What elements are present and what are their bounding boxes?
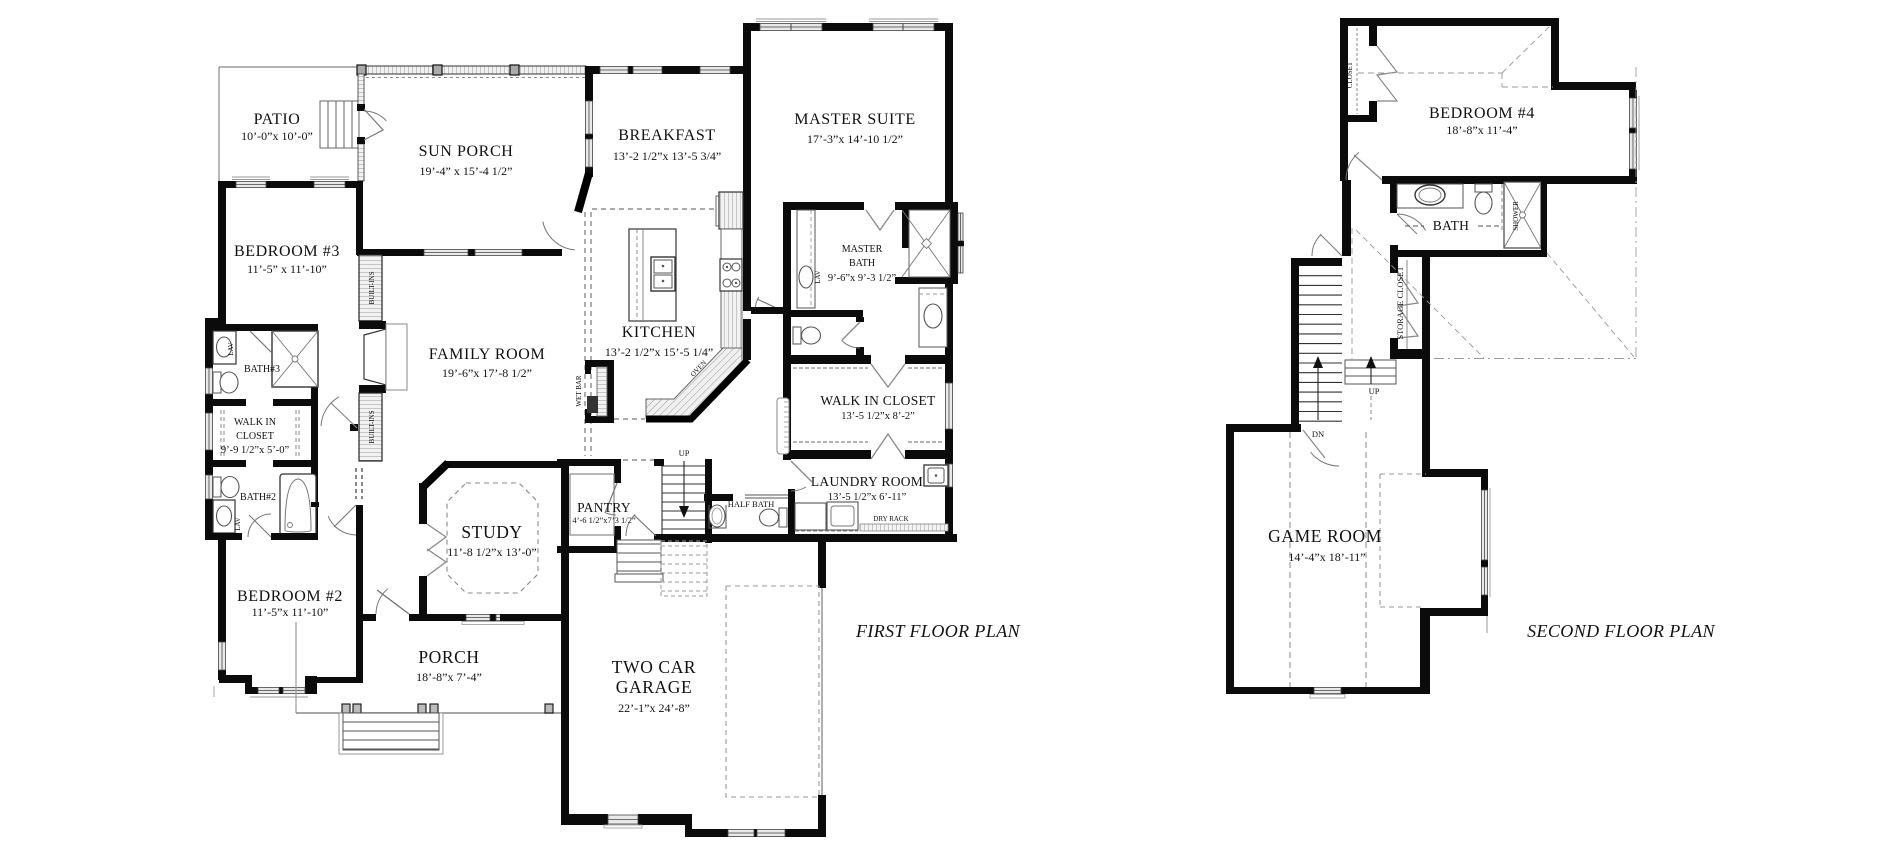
svg-text:BEDROOM #3: BEDROOM #3 bbox=[234, 243, 340, 260]
svg-text:TWO CAR: TWO CAR bbox=[612, 657, 696, 677]
svg-text:MASTER: MASTER bbox=[842, 244, 883, 255]
svg-text:13’-5 1/2”x 6’-11”: 13’-5 1/2”x 6’-11” bbox=[828, 492, 907, 503]
svg-text:BATH#2: BATH#2 bbox=[240, 492, 276, 503]
svg-text:11’-5”x 11’-10”: 11’-5”x 11’-10” bbox=[252, 605, 329, 619]
svg-text:19’-4” x 15’-4 1/2”: 19’-4” x 15’-4 1/2” bbox=[420, 164, 513, 178]
svg-text:FAMILY ROOM: FAMILY ROOM bbox=[429, 346, 546, 363]
svg-text:BEDROOM #2: BEDROOM #2 bbox=[237, 588, 343, 605]
svg-text:13’-5 1/2”x 8’-2”: 13’-5 1/2”x 8’-2” bbox=[841, 411, 915, 422]
svg-text:GARAGE: GARAGE bbox=[616, 677, 693, 697]
svg-text:KITCHEN: KITCHEN bbox=[622, 324, 696, 341]
svg-text:11’-5” x 11’-10”: 11’-5” x 11’-10” bbox=[247, 262, 327, 276]
svg-text:CLOSET: CLOSET bbox=[1346, 61, 1354, 88]
svg-text:9’-6”x 9’-3 1/2”: 9’-6”x 9’-3 1/2” bbox=[828, 273, 897, 284]
svg-text:BUILT-INS: BUILT-INS bbox=[368, 271, 376, 304]
svg-text:18’-8”x 7’-4”: 18’-8”x 7’-4” bbox=[416, 670, 482, 684]
svg-text:UP: UP bbox=[1369, 386, 1380, 396]
svg-text:17’-3”x 14’-10 1/2”: 17’-3”x 14’-10 1/2” bbox=[807, 132, 903, 146]
svg-text:LAV: LAV bbox=[234, 517, 242, 530]
svg-text:LAV: LAV bbox=[814, 270, 822, 283]
svg-text:DRY RACK: DRY RACK bbox=[873, 515, 908, 523]
svg-text:PATIO: PATIO bbox=[254, 111, 301, 128]
svg-text:10’-0”x 10’-0”: 10’-0”x 10’-0” bbox=[241, 129, 313, 143]
svg-text:LAUNDRY ROOM: LAUNDRY ROOM bbox=[811, 474, 923, 489]
svg-text:PANTRY: PANTRY bbox=[577, 500, 631, 515]
svg-text:SHOWER: SHOWER bbox=[1512, 201, 1520, 231]
svg-text:UP: UP bbox=[679, 448, 690, 458]
svg-text:FIRST FLOOR PLAN: FIRST FLOOR PLAN bbox=[855, 621, 1021, 641]
svg-text:PORCH: PORCH bbox=[418, 647, 479, 667]
svg-text:9’-9 1/2”x 5’-0”: 9’-9 1/2”x 5’-0” bbox=[221, 445, 290, 456]
svg-text:14’-4”x 18’-11”: 14’-4”x 18’-11” bbox=[1288, 550, 1365, 564]
svg-text:MASTER SUITE: MASTER SUITE bbox=[794, 111, 915, 128]
svg-text:BATH: BATH bbox=[1433, 218, 1469, 233]
svg-text:BATH#3: BATH#3 bbox=[244, 364, 280, 375]
svg-text:LAV: LAV bbox=[227, 342, 235, 355]
svg-text:BEDROOM #4: BEDROOM #4 bbox=[1429, 105, 1535, 122]
svg-text:SECOND FLOOR PLAN: SECOND FLOOR PLAN bbox=[1527, 621, 1715, 641]
svg-text:18’-8”x 11’-4”: 18’-8”x 11’-4” bbox=[1446, 123, 1517, 137]
svg-text:BATH: BATH bbox=[849, 258, 875, 269]
svg-text:DN: DN bbox=[1312, 429, 1324, 439]
svg-text:19’-6”x 17’-8 1/2”: 19’-6”x 17’-8 1/2” bbox=[442, 366, 532, 380]
svg-text:BREAKFAST: BREAKFAST bbox=[618, 127, 716, 144]
svg-text:STORAGE CLOSET: STORAGE CLOSET bbox=[1395, 266, 1405, 340]
svg-text:STUDY: STUDY bbox=[461, 522, 522, 542]
svg-text:4’-6 1/2”x7’3 1/2”: 4’-6 1/2”x7’3 1/2” bbox=[572, 515, 635, 525]
svg-text:13’-2 1/2”x 13’-5 3/4”: 13’-2 1/2”x 13’-5 3/4” bbox=[613, 149, 721, 163]
svg-text:22’-1”x 24’-8”: 22’-1”x 24’-8” bbox=[618, 701, 690, 715]
svg-text:13’-2 1/2”x 15’-5 1/4”: 13’-2 1/2”x 15’-5 1/4” bbox=[605, 345, 713, 359]
svg-text:HALF BATH: HALF BATH bbox=[728, 499, 775, 509]
svg-text:11’-8 1/2”x 13’-0”: 11’-8 1/2”x 13’-0” bbox=[447, 545, 537, 559]
svg-text:WALK IN: WALK IN bbox=[234, 417, 276, 428]
svg-text:WALK IN CLOSET: WALK IN CLOSET bbox=[820, 393, 936, 408]
svg-text:CLOSET: CLOSET bbox=[236, 431, 274, 442]
svg-text:WET BAR: WET BAR bbox=[575, 375, 583, 407]
svg-text:SUN PORCH: SUN PORCH bbox=[419, 143, 514, 160]
svg-text:GAME ROOM: GAME ROOM bbox=[1268, 526, 1382, 546]
svg-text:BUILT-INS: BUILT-INS bbox=[368, 410, 376, 443]
